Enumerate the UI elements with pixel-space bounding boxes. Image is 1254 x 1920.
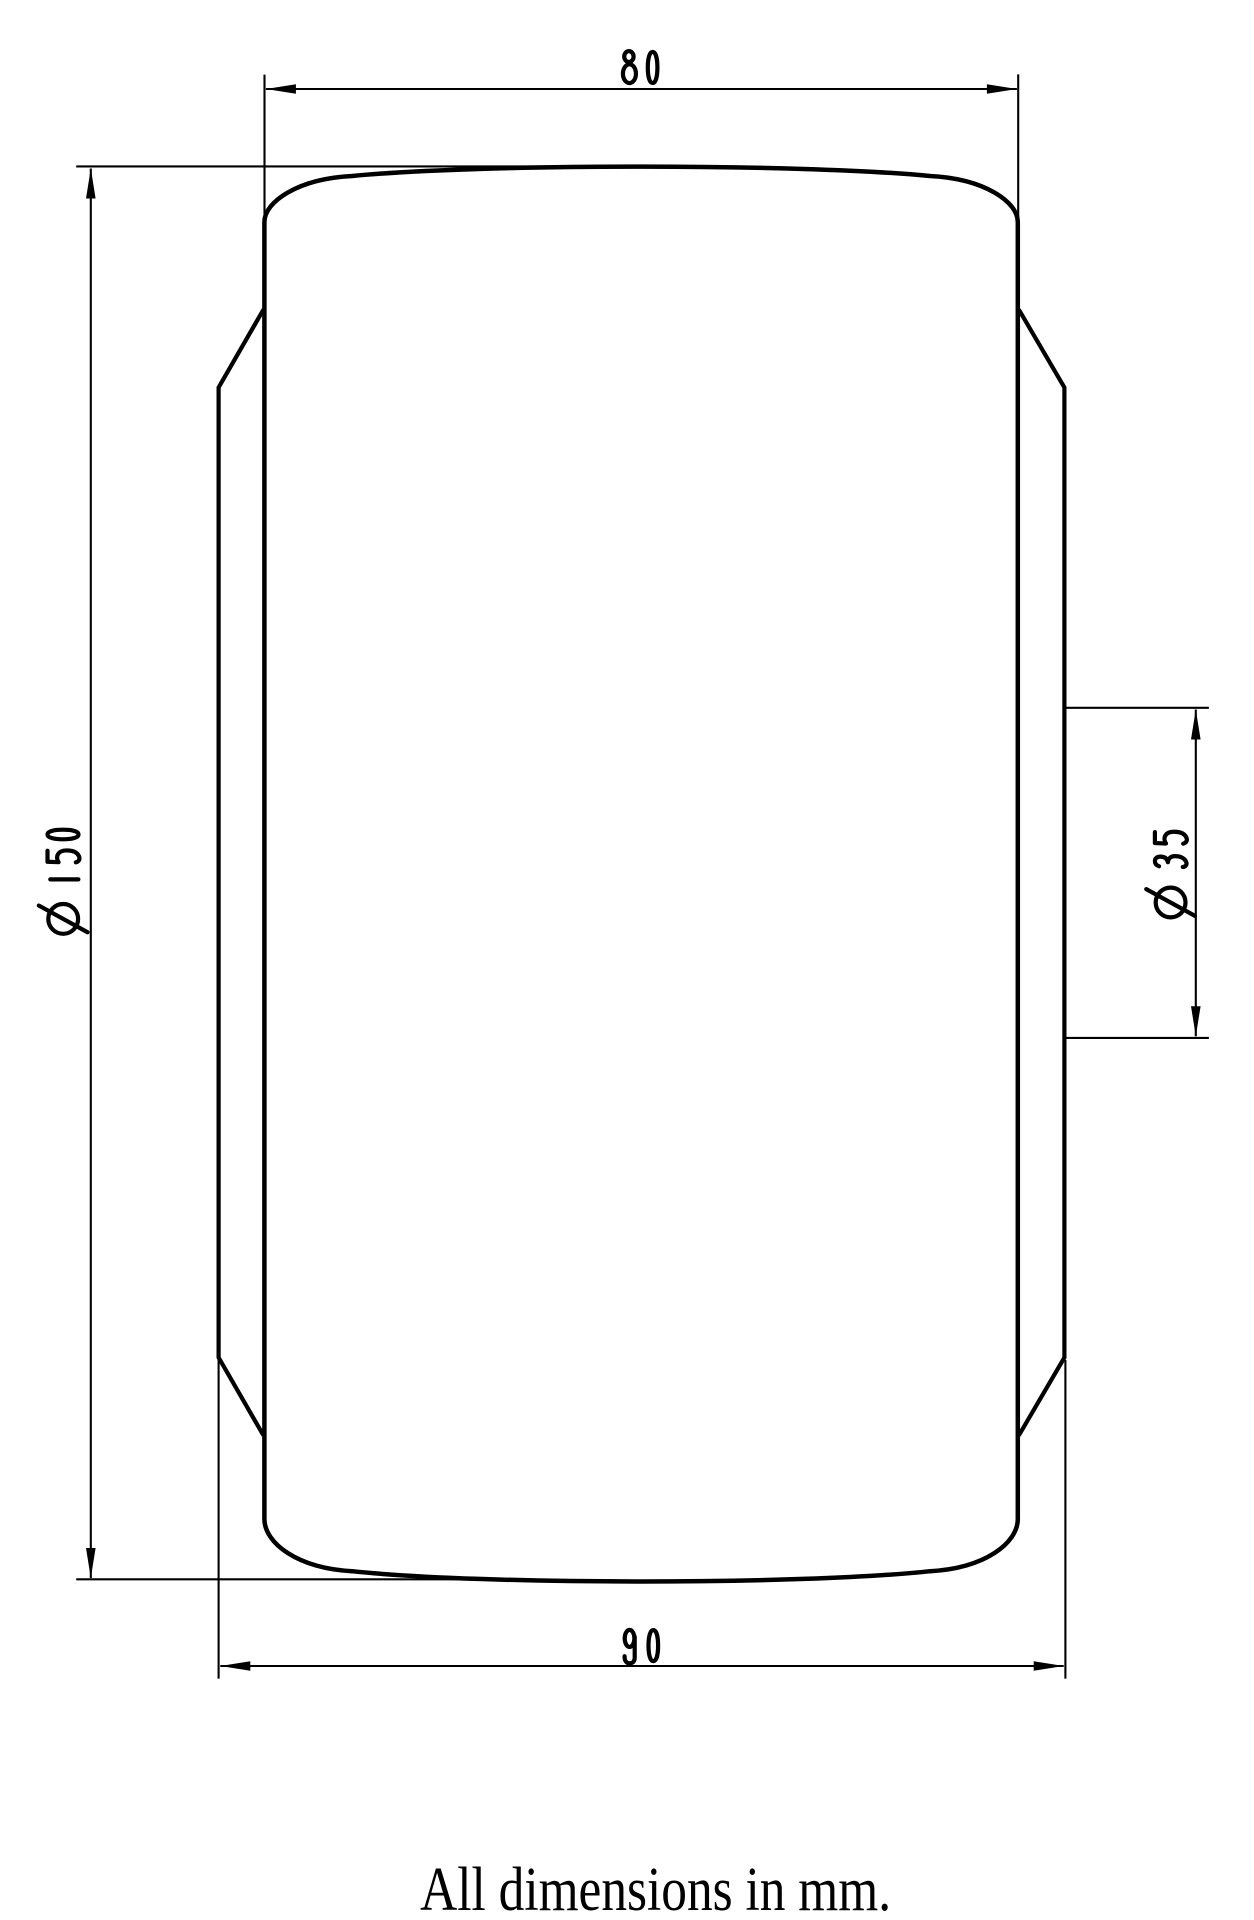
svg-text:All dimensions in mm.: All dimensions in mm. — [420, 1855, 891, 1920]
